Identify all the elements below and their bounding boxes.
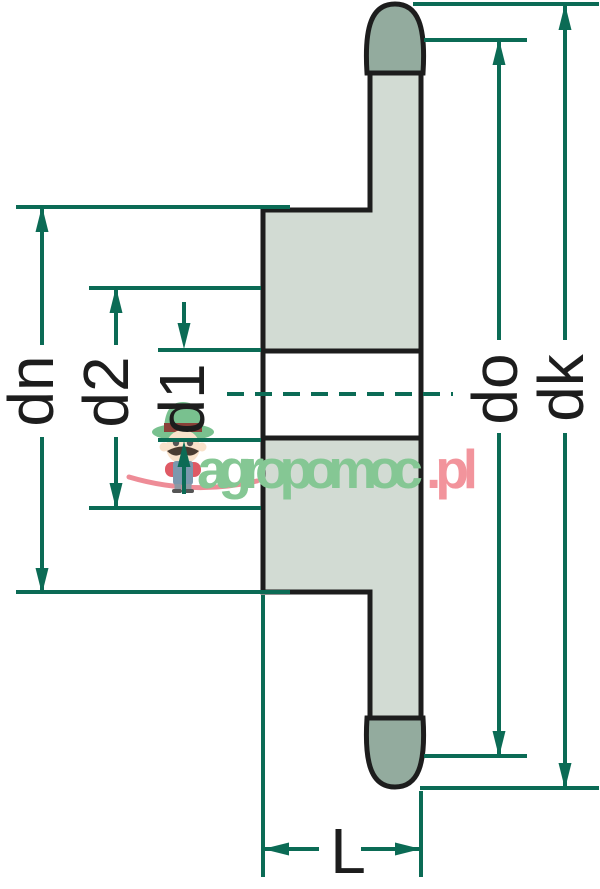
do-arrow-up (493, 39, 506, 65)
d2-arrow-up (110, 287, 123, 313)
sprocket-tooth-bottom (366, 718, 423, 787)
L-arrow-left (263, 843, 289, 856)
watermark-brand-pink: .pl (426, 438, 478, 500)
dk-arrow-up (559, 4, 572, 30)
L-arrow-right (395, 843, 421, 856)
label-dk: dk (525, 353, 597, 422)
technical-drawing-canvas: agropomoc.pl dn d2 d1 do dk L (0, 0, 600, 889)
label-do: do (459, 353, 531, 424)
sprocket-dimension-diagram: agropomoc.pl dn d2 d1 do dk L (0, 0, 600, 889)
watermark-text: agropomoc.pl (197, 438, 478, 500)
dk-arrow-down (559, 763, 572, 789)
sprocket-tooth-top (366, 4, 423, 73)
label-d2: d2 (70, 356, 142, 427)
do-arrow-down (493, 731, 506, 757)
dn-arrow-up (36, 206, 49, 232)
label-dn: dn (0, 355, 67, 426)
label-d1: d1 (146, 363, 218, 434)
label-L: L (330, 815, 366, 887)
watermark-brand-green: agropomoc (197, 438, 423, 500)
d2-arrow-down (110, 483, 123, 509)
d1-arrow-down (178, 323, 191, 349)
